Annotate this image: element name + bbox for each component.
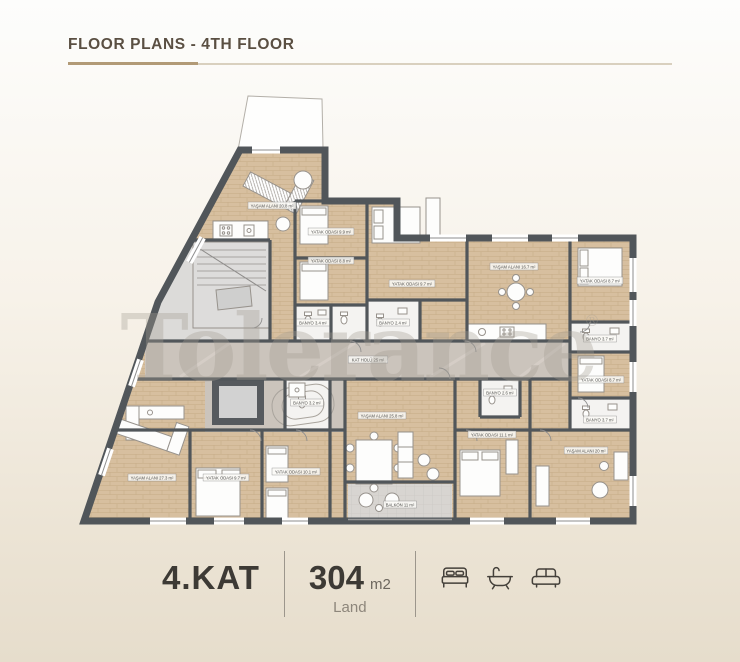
desk — [614, 452, 628, 480]
window — [552, 235, 578, 242]
sofa-icon — [530, 564, 562, 591]
watermark-registered-mark: ® — [584, 311, 600, 330]
divider — [415, 551, 416, 617]
sink — [610, 328, 619, 334]
watermark: Tolerance ® — [120, 294, 600, 402]
window — [630, 476, 637, 506]
armchair — [359, 493, 373, 507]
window — [252, 147, 280, 154]
area-unit: m2 — [370, 576, 391, 593]
chair — [600, 462, 609, 471]
terrace-outline — [238, 96, 323, 150]
armchair — [418, 454, 430, 466]
room-label: YAŞAM ALANI 16.7 m² — [493, 265, 536, 270]
room-label: YATAK ODASI 9.7 m² — [392, 282, 433, 287]
sink — [608, 404, 617, 410]
area-value: 304 — [309, 559, 364, 597]
room-label: YATAK ODASI 9.9 m² — [311, 230, 352, 235]
room-label: YATAK ODASI 10.1 m² — [275, 470, 318, 475]
room-label: YAŞAM ALANI 20.8 m² — [251, 204, 294, 209]
summary-bar: 4.KAT 304 m2 Land — [162, 551, 562, 617]
area-block: 304 m2 Land — [309, 551, 391, 616]
round-table — [592, 482, 608, 498]
bed — [266, 488, 288, 518]
area-type: Land — [309, 599, 391, 616]
room-label: YATAK ODASI 11.1 m² — [471, 433, 514, 438]
window — [492, 235, 528, 242]
room-label: YATAK ODASI 9.7 m² — [206, 476, 247, 481]
bed-icon — [440, 564, 470, 591]
watermark-text: Tolerance — [120, 294, 595, 402]
sofa — [536, 466, 549, 506]
window — [150, 518, 186, 525]
wardrobe — [506, 440, 518, 474]
chair — [513, 275, 520, 282]
floor-label: 4.KAT — [162, 551, 260, 597]
bed — [460, 450, 500, 496]
window — [556, 518, 590, 525]
window — [282, 518, 308, 525]
bed — [266, 446, 288, 482]
armchair — [427, 468, 439, 480]
window — [630, 300, 637, 326]
window — [430, 235, 466, 242]
bathtub-icon — [485, 564, 515, 591]
room-label: YAŞAM ALANI 27.3 m² — [131, 476, 174, 481]
window — [214, 518, 244, 525]
sofa — [398, 432, 413, 478]
side-table — [376, 505, 383, 512]
room-label: BALKON 11 m² — [386, 503, 415, 508]
room-label: BANYO 3.7 m² — [586, 418, 614, 423]
divider — [284, 551, 285, 617]
bed — [300, 206, 328, 244]
room-label: YAŞAM ALANI 20 m² — [566, 449, 606, 454]
window — [630, 362, 637, 392]
feature-icons — [440, 551, 562, 591]
wardrobe — [426, 198, 440, 236]
room-label: YAŞAM ALANI 25.8 m² — [361, 414, 404, 419]
round-table — [276, 217, 290, 231]
window — [630, 258, 637, 292]
window — [470, 518, 504, 525]
room-label: YATAK ODASI 8.7 m² — [580, 279, 621, 284]
kitchen-counter — [213, 221, 268, 240]
round-table — [294, 171, 312, 189]
room-label: YATAK ODASI 8.8 m² — [311, 259, 352, 264]
